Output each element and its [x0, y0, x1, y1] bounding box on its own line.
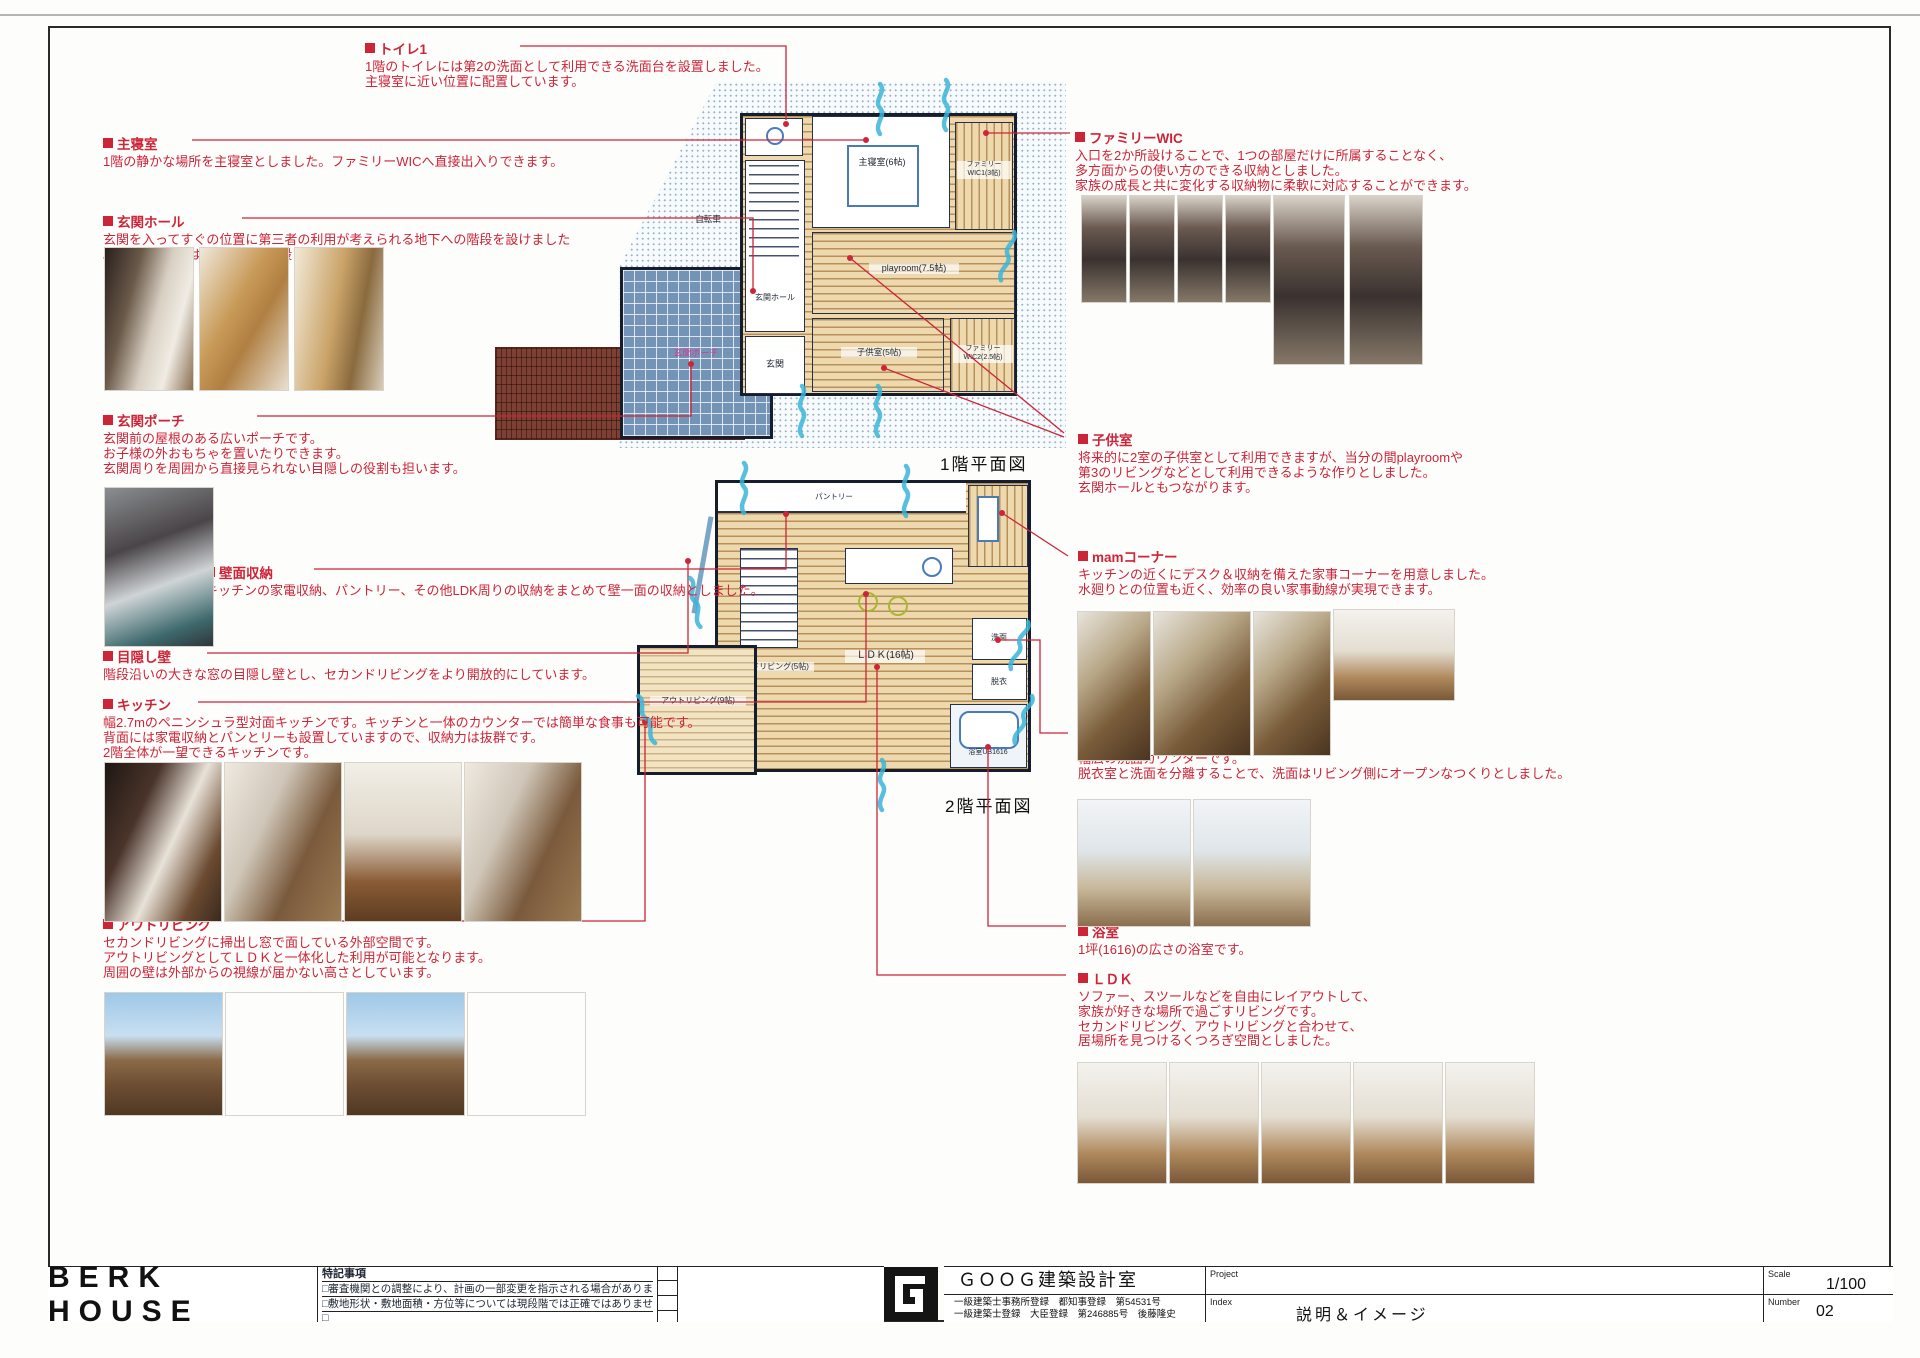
note-line: □: [322, 1312, 653, 1325]
annotation-text: 将来的に2室の子供室として利用できますが、当分の間playroomや: [1078, 451, 1463, 466]
photo-ldk-3: [1262, 1063, 1350, 1183]
annotation-bathroom: 浴室 1坪(1616)の広さの浴室です。: [1078, 921, 1252, 958]
annotation-text: 玄関前の屋根のある広いポーチです。: [103, 432, 466, 447]
room-wic2: ファミリーWIC2(2.5帖): [950, 318, 1015, 392]
number-value: 02: [1816, 1303, 1834, 1321]
scan-artifact-top: [0, 14, 1920, 16]
room-label-kids: 子供室(5帖): [841, 347, 917, 358]
annotation-text: 周囲の壁は外部からの視線が届かない高さとしています。: [103, 966, 491, 981]
section-bullet-icon: [1078, 434, 1088, 444]
caption-floor1: 1階平面図: [940, 450, 1027, 475]
room-label-dress: 脱衣: [975, 677, 1023, 687]
bed-icon: [847, 145, 919, 207]
annotation-title: トイレ1: [379, 38, 427, 58]
section-bullet-icon: [103, 216, 113, 226]
firm-logo: [884, 1267, 938, 1321]
room-label-playroom: playroom(7.5帖): [869, 263, 959, 274]
stairs-1f: [749, 165, 799, 257]
room-hall-stairs: 玄関ホール: [745, 160, 805, 332]
annotation-text: 玄関を入ってすぐの位置に第三者の利用が考えられる地下への階段を設けました: [103, 233, 570, 248]
photo-ldk-4: [1354, 1063, 1442, 1183]
pantry-strip: パントリー: [718, 483, 966, 513]
room-label-wic2: ファミリーWIC2(2.5帖): [953, 345, 1013, 363]
annotation-out-living: アウトリビング セカンドリビングに掃出し窓で面している外部空間です。 アウトリビ…: [103, 914, 491, 980]
photo-stairs-3: [295, 248, 383, 390]
room-label-entrance: 玄関: [748, 359, 802, 370]
annotation-text: 玄関ホールともつながります。: [1078, 481, 1463, 496]
annotation-text: アウトリビングとしてＬＤＫと一体化した利用が可能となります。: [103, 951, 491, 966]
annotation-text: 2階全体が一望できるキッチンです。: [103, 746, 701, 761]
notes-title: 特記事項: [322, 1268, 653, 1282]
sheet-title: BERK HOUSE: [48, 1266, 318, 1322]
scale-value: 1/100: [1826, 1276, 1866, 1294]
section-bullet-icon: [1075, 132, 1085, 142]
titleblock-spacer: [678, 1266, 884, 1322]
room-label-porch: 玄関ポーチ: [636, 348, 756, 359]
annotation-title: ファミリーWIC: [1089, 127, 1183, 147]
scale-label: Scale: [1764, 1267, 1791, 1279]
annotation-title: ＬＤＫ: [1092, 968, 1133, 988]
annotation-mam-corner: mamコーナー キッチンの近くにデスク＆収納を備えた家事コーナーを用意しました。…: [1078, 546, 1494, 598]
annotation-text: 背面には家電収納とパンとリーも設置していますので、収納力は抜群です。: [103, 731, 701, 746]
section-bullet-icon: [1078, 973, 1088, 983]
annotation-text: 1階のトイレには第2の洗面として利用できる洗面台を設置しました。: [365, 60, 769, 75]
annotation-text: 1坪(1616)の広さの浴室です。: [1078, 943, 1252, 958]
photo-wic-6: [1350, 196, 1422, 364]
section-bullet-icon: [103, 699, 113, 709]
project-cell: Project: [1206, 1266, 1764, 1294]
annotation-text: 玄関周りを周囲から直接見られない目隠しの役割も担います。: [103, 462, 466, 477]
stool-icon: [858, 592, 878, 612]
photo-ldk-2: [1170, 1063, 1258, 1183]
room-playroom: playroom(7.5帖): [812, 232, 1015, 314]
annotation-blind-wall: 目隠し壁 階段沿いの大きな窓の目隠し壁とし、セカンドリビングをより開放的にしてい…: [103, 646, 595, 683]
annotation-title: 玄関ホール: [117, 211, 185, 231]
annotation-kitchen: キッチン 幅2.7mのペニンシュラ型対面キッチンです。キッチンと一体のカウンター…: [103, 694, 701, 760]
annotation-text: 幅2.7mのペニンシュラ型対面キッチンです。キッチンと一体のカウンターでは簡単な…: [103, 716, 701, 731]
annotation-text: セカンドリビング、アウトリビングと合わせて、: [1078, 1020, 1376, 1035]
annotation-master: 主寝室 1階の静かな場所を主寝室としました。ファミリーWICへ直接出入りできます…: [103, 133, 563, 170]
goog-logo-icon: [884, 1267, 938, 1321]
photo-mam-1: [1078, 612, 1150, 760]
firm-registration-1: 一級建築士事務所登録 都知事登録 第54531号: [954, 1297, 1205, 1309]
annotation-text: お子様の外おもちゃを置いたりできます。: [103, 447, 466, 462]
index-value: 説明＆イメージ: [1296, 1301, 1429, 1325]
site-label-bicycle: 自転車: [688, 214, 728, 225]
photo-porch: [105, 488, 213, 646]
kitchen-island: [845, 548, 953, 584]
annotation-text: 家族の成長と共に変化する収納物に柔軟に対応することができます。: [1075, 179, 1477, 194]
photo-mam-2: [1154, 612, 1250, 755]
photo-ldk-5: [1446, 1063, 1534, 1183]
number-label: Number: [1764, 1295, 1800, 1307]
note-line: □審査機関との調整により、計画の一部変更を指示される場合があります。: [322, 1282, 653, 1297]
stool-icon: [888, 596, 908, 616]
index-label: Index: [1206, 1295, 1232, 1307]
number-cell: Number 02: [1764, 1294, 1893, 1322]
annotation-text: 1階の静かな場所を主寝室としました。ファミリーWICへ直接出入りできます。: [103, 155, 563, 170]
photo-kitchen-2: [225, 763, 341, 921]
room-entrance: 玄関: [745, 336, 805, 394]
section-bullet-icon: [1078, 926, 1088, 936]
room-toilet-1f: [745, 118, 803, 156]
photo-ldk-1: [1078, 1063, 1166, 1183]
photo-outliving-2: [226, 993, 343, 1115]
annotation-toilet: トイレ1 1階のトイレには第2の洗面として利用できる洗面台を設置しました。 主寝…: [365, 38, 769, 90]
room-bath: 浴室UB1616: [950, 704, 1027, 768]
room-label-bedroom: 主寝室(6帖): [849, 157, 915, 168]
annotation-text: 入口を2か所設けることで、1つの部屋だけに所属することなく、: [1075, 149, 1477, 164]
drawing-sheet: 玄関ポーチ 主寝室(6帖) ファミリーWIC1(3帖) 玄関ホール playro…: [0, 0, 1920, 1358]
annotation-ldk: ＬＤＫ ソファー、スツールなどを自由にレイアウトして、 家族が好きな場所で過ごす…: [1078, 968, 1376, 1049]
photo-mam-3: [1254, 612, 1330, 755]
annotation-title: 目隠し壁: [117, 646, 171, 666]
firm-name: ＧＯＯＧ建築設計室: [944, 1267, 1205, 1295]
bathtub-icon: [959, 711, 1019, 749]
annotation-family-wic: ファミリーWIC 入口を2か所設けることで、1つの部屋だけに所属することなく、 …: [1075, 127, 1477, 193]
room-wic1: ファミリーWIC1(3帖): [955, 122, 1013, 230]
photo-kitchen-1: [105, 763, 221, 921]
room-label-pantry: パントリー: [804, 492, 864, 501]
photo-hall-1: [105, 248, 193, 390]
mam-corner-area: [968, 485, 1028, 567]
section-bullet-icon: [365, 43, 375, 53]
room-label-bath: 浴室UB1616: [955, 749, 1021, 758]
annotation-text: セカンドリビングに掃出し窓で面している外部空間です。: [103, 936, 491, 951]
photo-wash-2: [1194, 800, 1310, 926]
photo-wic-2: [1130, 196, 1174, 302]
section-bullet-icon: [103, 415, 113, 425]
special-notes: 特記事項 □審査機関との調整により、計画の一部変更を指示される場合があります。 …: [318, 1266, 658, 1322]
toilet-icon: [766, 127, 784, 145]
photo-mam-4: [1334, 610, 1454, 700]
annotation-text: 水廻りとの位置も近く、効率の良い家事動線が実現できます。: [1078, 583, 1494, 598]
room-label-hall: 玄関ホール: [748, 293, 802, 303]
desk-icon: [977, 496, 999, 542]
firm-block: ＧＯＯＧ建築設計室 一級建築士事務所登録 都知事登録 第54531号 一級建築士…: [944, 1266, 1206, 1322]
room-bedroom: 主寝室(6帖): [812, 116, 950, 228]
note-line: □敷地形状・敷地面積・方位等については現段階では正確ではありません。: [322, 1297, 653, 1312]
photo-outliving-4: [468, 993, 585, 1115]
annotation-text: 第3のリビングなどとして利用できるような作りとしました。: [1078, 466, 1463, 481]
annotation-title: 子供室: [1092, 429, 1133, 449]
room-label-ldk: ＬＤＫ(16帖): [845, 650, 925, 663]
section-bullet-icon: [1078, 551, 1088, 561]
photo-wash-1: [1078, 800, 1190, 926]
index-cell: Index 説明＆イメージ: [1206, 1294, 1764, 1322]
photo-wic-4: [1226, 196, 1270, 302]
photo-outliving-1: [105, 993, 222, 1115]
annotation-title: 壁面収納: [219, 562, 273, 582]
annotation-title: 玄関ポーチ: [117, 410, 185, 430]
photo-wic-3: [1178, 196, 1222, 302]
annotation-text: 階段沿いの大きな窓の目隠し壁とし、セカンドリビングをより開放的にしています。: [103, 668, 595, 683]
annotation-text: 居場所を見つけるくつろぎ空間としました。: [1078, 1034, 1376, 1049]
annotation-porch: 玄関ポーチ 玄関前の屋根のある広いポーチです。 お子様の外おもちゃを置いたりでき…: [103, 410, 466, 476]
room-label-wash: 洗面: [975, 633, 1023, 643]
annotation-text: 家族が好きな場所で過ごすリビングです。: [1078, 1005, 1376, 1020]
annotation-wall-storage: 壁面収納 キッチンの家電収納、パントリー、その他LDK周りの収納をまとめて壁一面…: [205, 562, 764, 599]
room-kids: 子供室(5帖): [812, 318, 944, 392]
annotation-text: ソファー、スツールなどを自由にレイアウトして、: [1078, 990, 1376, 1005]
photo-stairs-2: [200, 248, 288, 390]
annotation-title: 主寝室: [117, 133, 158, 153]
annotation-text: 主寝室に近い位置に配置しています。: [365, 75, 769, 90]
photo-wic-5: [1274, 196, 1344, 364]
room-label-wic1: ファミリーWIC1(3帖): [957, 161, 1011, 179]
annotation-text: キッチンの近くにデスク＆収納を備えた家事コーナーを用意しました。: [1078, 568, 1494, 583]
annotation-kids-room: 子供室 将来的に2室の子供室として利用できますが、当分の間playroomや 第…: [1078, 429, 1463, 495]
scan-artifact-bottom: [0, 1342, 1920, 1358]
annotation-text: 多方面からの使い方のできる収納としました。: [1075, 164, 1477, 179]
notes-spare-column: [658, 1266, 678, 1322]
section-bullet-icon: [103, 651, 113, 661]
room-dressing: 脱衣: [972, 664, 1027, 700]
project-label: Project: [1206, 1267, 1763, 1279]
photo-kitchen-4: [465, 763, 581, 921]
annotation-title: キッチン: [117, 694, 171, 714]
firm-registration-2: 一級建築士登録 大臣登録 第246885号 後藤隆史: [954, 1309, 1205, 1321]
annotation-text: キッチンの家電収納、パントリー、その他LDK周りの収納をまとめて壁一面の収納とし…: [205, 584, 764, 599]
section-bullet-icon: [103, 138, 113, 148]
scale-cell: Scale 1/100: [1764, 1266, 1893, 1294]
annotation-text: 脱衣室と洗面を分離することで、洗面はリビング側にオープンなつくりとしました。: [1078, 767, 1570, 782]
sink-icon: [922, 557, 942, 577]
room-washroom: 洗面: [972, 618, 1027, 660]
photo-outliving-3: [347, 993, 464, 1115]
photo-wic-1: [1082, 196, 1126, 302]
caption-floor2: 2階平面図: [945, 792, 1032, 817]
annotation-title: mamコーナー: [1092, 546, 1178, 566]
photo-kitchen-3: [345, 763, 461, 921]
